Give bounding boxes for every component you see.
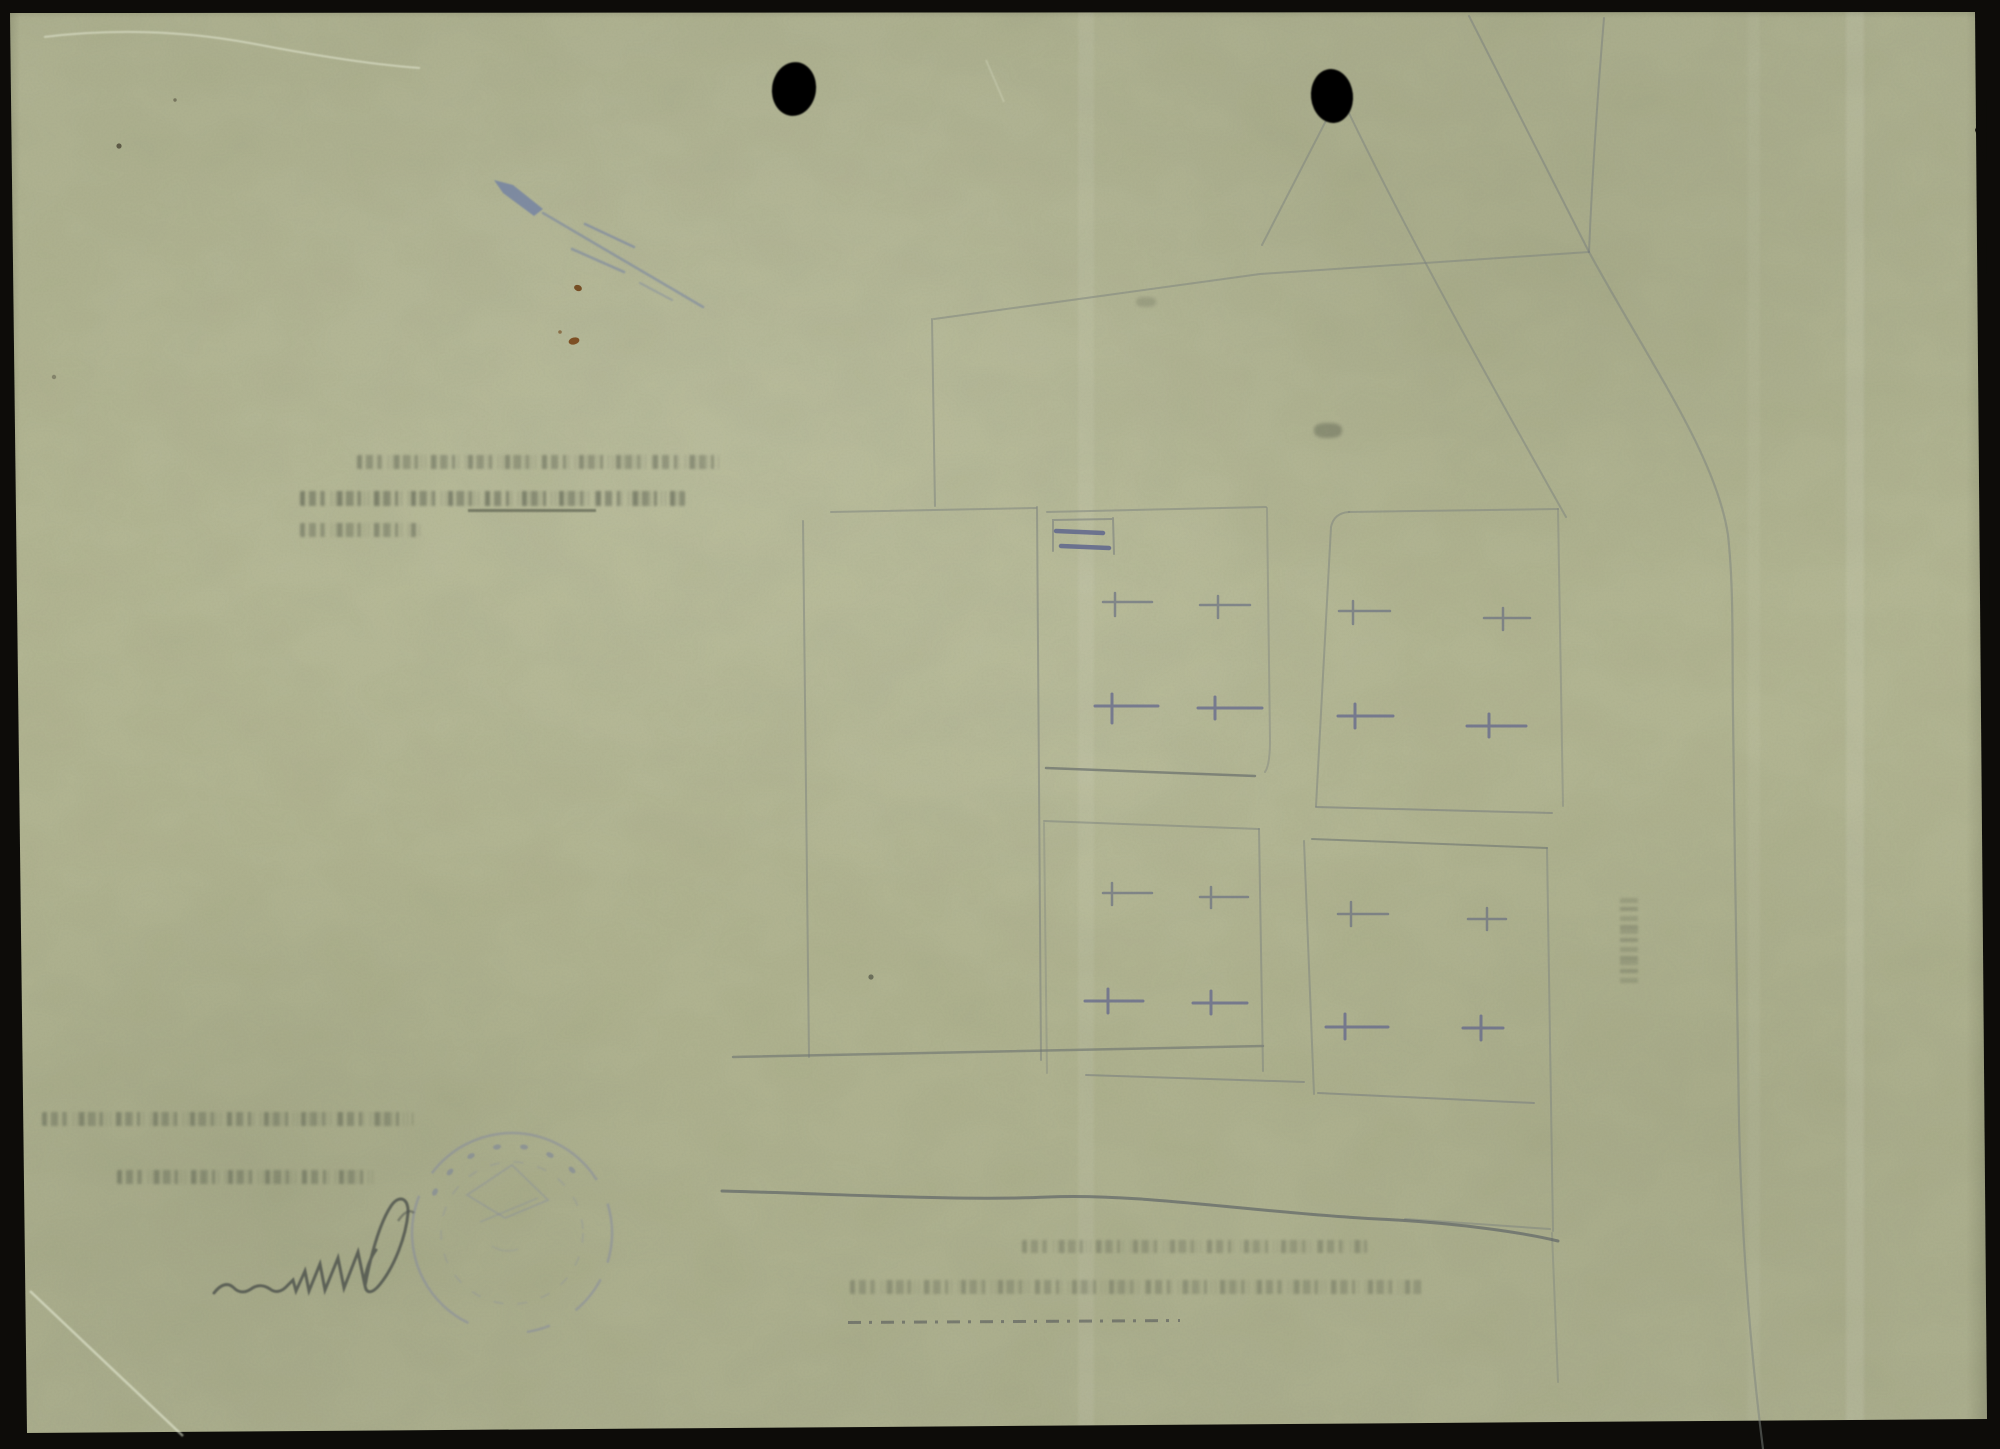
scanned-document-page: [0, 0, 2000, 1449]
scan-artwork-overlay: [0, 0, 2000, 1449]
paper-texture: [10, 12, 1987, 1433]
